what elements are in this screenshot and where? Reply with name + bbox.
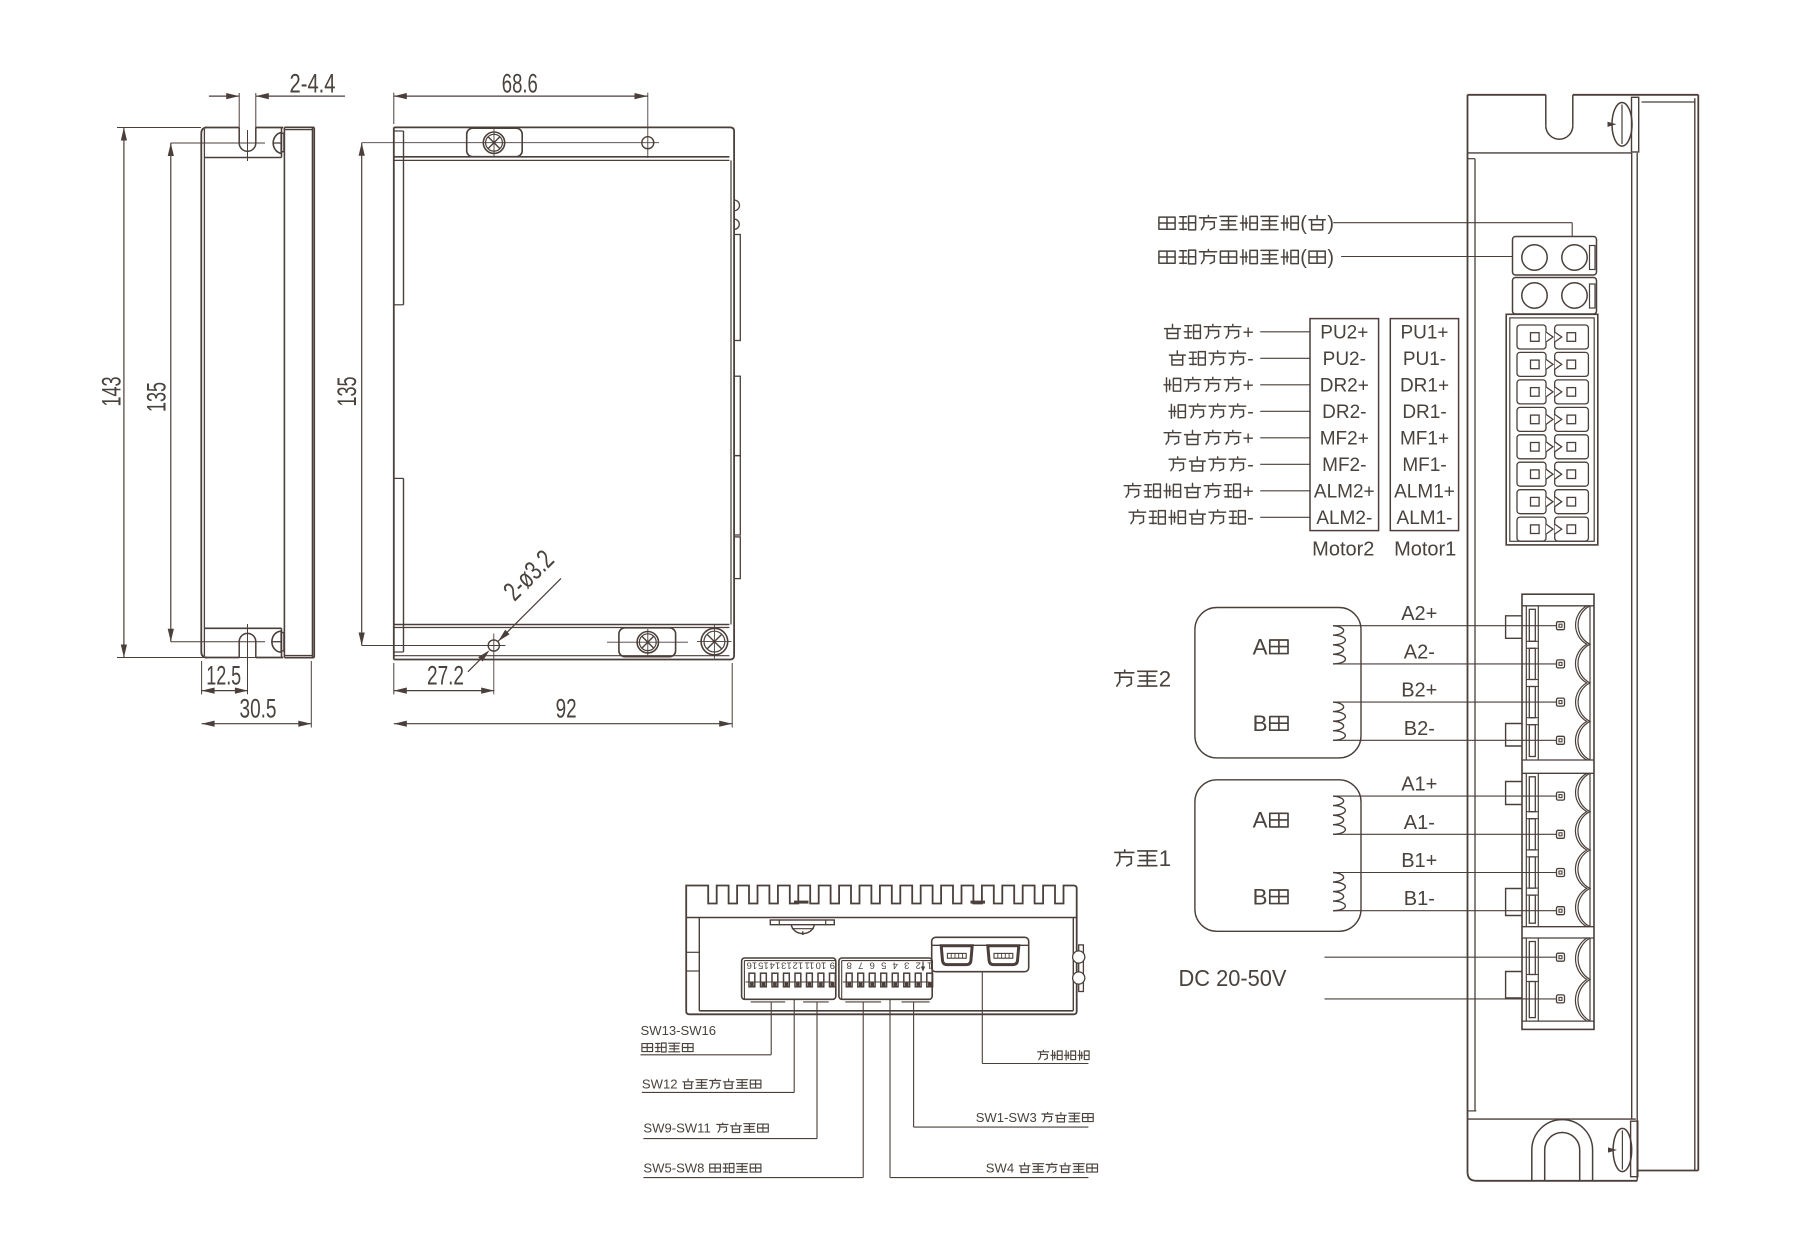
svg-text:A: A xyxy=(1253,634,1268,659)
svg-text:SW13-SW16: SW13-SW16 xyxy=(641,1023,717,1038)
svg-text:Motor2: Motor2 xyxy=(1312,539,1374,561)
svg-text:+: + xyxy=(1243,375,1254,397)
svg-text:DR1-: DR1- xyxy=(1402,402,1446,423)
svg-text:B: B xyxy=(1253,711,1268,736)
svg-text:MF1-: MF1- xyxy=(1402,455,1446,476)
svg-text:SW12: SW12 xyxy=(642,1077,678,1092)
svg-text:ALM1-: ALM1- xyxy=(1397,508,1453,529)
svg-text:15: 15 xyxy=(758,960,769,971)
svg-text:): ) xyxy=(1327,247,1334,269)
svg-text:-: - xyxy=(1247,454,1253,476)
svg-text:+: + xyxy=(1243,481,1254,503)
svg-text:3: 3 xyxy=(904,960,909,971)
svg-text:ALM2-: ALM2- xyxy=(1316,508,1372,529)
svg-text:PU2+: PU2+ xyxy=(1320,322,1368,343)
svg-text:+: + xyxy=(1243,322,1254,344)
svg-text:B2-: B2- xyxy=(1404,718,1435,740)
svg-text:12: 12 xyxy=(793,960,804,971)
svg-text:DR2+: DR2+ xyxy=(1320,375,1369,396)
svg-text:(: ( xyxy=(1300,247,1307,269)
svg-text:7: 7 xyxy=(858,960,863,971)
svg-text:4: 4 xyxy=(893,960,898,971)
svg-text:B1-: B1- xyxy=(1404,888,1435,910)
svg-text:6: 6 xyxy=(870,960,875,971)
svg-text:-: - xyxy=(1247,507,1253,529)
svg-text:1: 1 xyxy=(1159,846,1171,871)
svg-text:12.5: 12.5 xyxy=(206,660,241,690)
svg-text:PU1+: PU1+ xyxy=(1400,322,1448,343)
svg-text:14: 14 xyxy=(770,960,781,971)
svg-text:8: 8 xyxy=(847,960,852,971)
svg-text:9: 9 xyxy=(830,960,835,971)
svg-text:68.6: 68.6 xyxy=(502,69,538,99)
svg-text:MF1+: MF1+ xyxy=(1400,428,1449,449)
svg-text:A1+: A1+ xyxy=(1401,774,1437,796)
svg-text:SW5-SW8: SW5-SW8 xyxy=(643,1161,704,1176)
svg-text:10: 10 xyxy=(816,960,827,971)
svg-text:B: B xyxy=(1253,884,1268,909)
svg-text:2-4.4: 2-4.4 xyxy=(290,69,336,99)
svg-text:30.5: 30.5 xyxy=(240,693,277,723)
svg-text:A2+: A2+ xyxy=(1401,603,1437,625)
svg-text:SW4: SW4 xyxy=(986,1161,1014,1176)
svg-text:MF2+: MF2+ xyxy=(1320,428,1369,449)
svg-text:B2+: B2+ xyxy=(1401,680,1437,702)
svg-text:ALM2+: ALM2+ xyxy=(1314,481,1375,502)
svg-text:A: A xyxy=(1253,808,1268,833)
svg-text:SW1-SW3: SW1-SW3 xyxy=(976,1110,1037,1125)
svg-text:SW9-SW11: SW9-SW11 xyxy=(643,1121,710,1136)
svg-text:A2-: A2- xyxy=(1404,641,1435,663)
svg-text:DR2-: DR2- xyxy=(1322,402,1366,423)
svg-text:13: 13 xyxy=(781,960,792,971)
svg-text:-: - xyxy=(1247,348,1253,370)
svg-text:135: 135 xyxy=(332,377,362,407)
svg-text:PU1-: PU1- xyxy=(1403,349,1446,370)
svg-text:Motor1: Motor1 xyxy=(1394,539,1456,561)
svg-text:A1-: A1- xyxy=(1404,812,1435,834)
svg-text:2: 2 xyxy=(1159,667,1171,692)
svg-text:-: - xyxy=(1247,401,1253,423)
svg-text:DC 20-50V: DC 20-50V xyxy=(1179,965,1288,991)
svg-text:5: 5 xyxy=(881,960,886,971)
svg-text:DR1+: DR1+ xyxy=(1400,375,1449,396)
svg-text:11: 11 xyxy=(804,960,814,971)
svg-text:2: 2 xyxy=(916,960,921,971)
svg-text:MF2-: MF2- xyxy=(1322,455,1366,476)
svg-text:92: 92 xyxy=(556,693,577,723)
svg-text:16: 16 xyxy=(747,960,758,971)
svg-text:143: 143 xyxy=(97,377,127,407)
svg-text:PU2-: PU2- xyxy=(1323,349,1366,370)
svg-text:+: + xyxy=(1243,428,1254,450)
svg-text:): ) xyxy=(1327,213,1334,235)
svg-text:27.2: 27.2 xyxy=(427,660,464,690)
svg-text:B1+: B1+ xyxy=(1401,850,1437,872)
svg-text:(: ( xyxy=(1300,213,1307,235)
svg-text:ALM1+: ALM1+ xyxy=(1394,481,1455,502)
svg-text:135: 135 xyxy=(142,382,172,412)
